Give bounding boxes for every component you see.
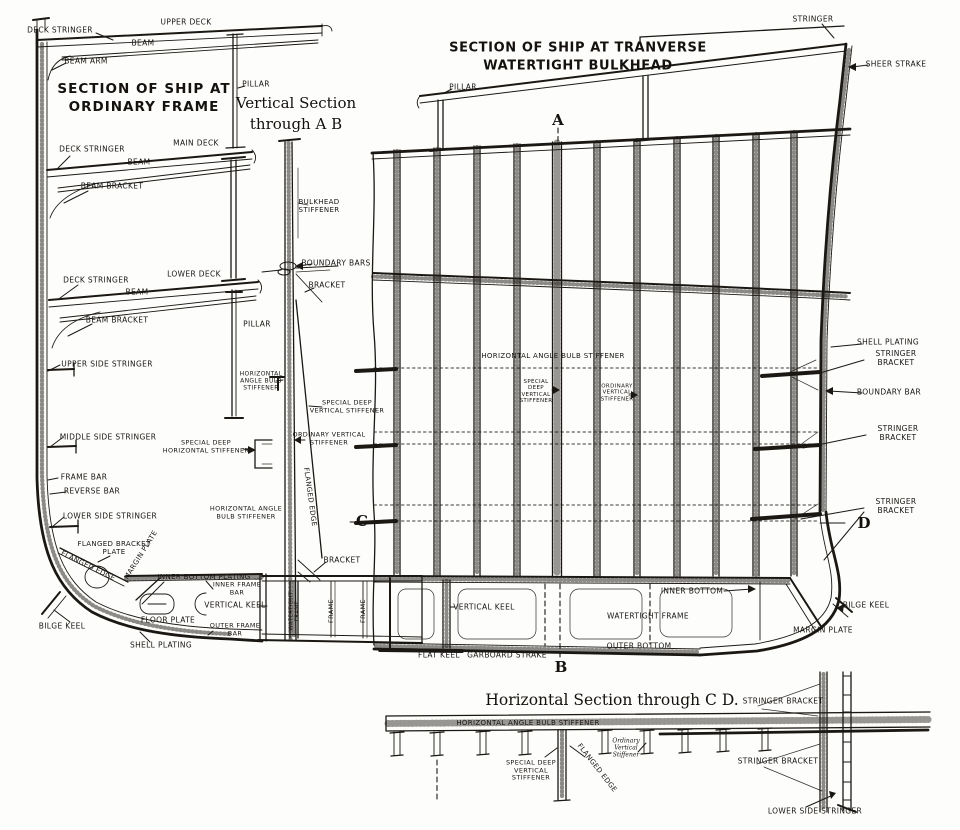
label-special-deep-horizontal-stiffener: SPECIAL DEEP HORIZONTAL STIFFENER — [163, 439, 250, 454]
label-beam-arm: BEAM ARM — [64, 58, 107, 67]
label-stringer-bracket-plan-bottom: STRINGER BRACKET — [738, 758, 819, 767]
label-sheer-strake: SHEER STRAKE — [866, 61, 927, 70]
marker-c: C — [356, 512, 368, 530]
ship-sections-plate: SECTION OF SHIP AT ORDINARY FRAME SECTIO… — [0, 0, 960, 830]
label-stringer-bracket-3: STRINGER BRACKET — [864, 498, 928, 516]
label-bilge-keel-right: BILGE KEEL — [843, 602, 890, 611]
leader-lines — [48, 24, 868, 807]
label-shell-plating-right: SHELL PLATING — [857, 339, 919, 348]
label-frame-1: FRAME — [328, 599, 336, 623]
label-stringer-bracket-2: STRINGER BRACKET — [867, 425, 929, 443]
marker-a: A — [552, 111, 564, 129]
label-shell-plating-left: SHELL PLATING — [130, 642, 192, 651]
label-horiz-angle-bulb-stiffener-lower: HORIZONTAL ANGLE BULB STIFFENER — [210, 505, 282, 520]
label-horiz-angle-bulb-stiffener-left: HORIZONTAL ANGLE BULB STIFFENER — [240, 370, 283, 391]
marker-b: B — [555, 658, 568, 676]
label-beam-upper: BEAM — [132, 40, 155, 49]
label-frame-2: FRAME — [360, 599, 368, 623]
horizontal-section-title: Horizontal Section through C D. — [485, 690, 738, 712]
label-middle-side-stringer: MIDDLE SIDE STRINGER — [60, 434, 157, 443]
label-special-deep-vertical-stiffener-mid: SPECIAL DEEP VERTICAL STIFFENER — [310, 399, 385, 414]
label-inner-frame-bar: INNER FRAME BAR — [213, 581, 261, 596]
label-boundary-bars: BOUNDARY BARS — [301, 260, 370, 269]
label-outer-frame-bar: OUTER FRAME BAR — [210, 622, 261, 637]
label-upper-deck: UPPER DECK — [160, 19, 211, 28]
label-inner-bottom-right: INNER BOTTOM — [661, 588, 723, 597]
label-frame-bar: FRAME BAR — [61, 474, 108, 483]
label-reverse-bar: REVERSE BAR — [64, 488, 120, 497]
label-beam-main: BEAM — [128, 159, 151, 168]
label-pillar-upper: PILLAR — [242, 81, 270, 90]
label-deck-stringer-top: DECK STRINGER — [27, 27, 93, 36]
label-vertical-keel-right: VERTICAL KEEL — [453, 604, 514, 613]
label-stringer-top: STRINGER — [793, 16, 834, 25]
label-floor-plate: FLOOR PLATE — [141, 617, 195, 626]
label-beam-lower: BEAM — [126, 289, 149, 298]
label-watertight-frame-mid: WATERTIGHT FRAME — [289, 592, 302, 631]
label-lower-side-stringer-plan: LOWER SIDE STRINGER — [768, 808, 862, 817]
label-beam-bracket-main: BEAM BRACKET — [81, 183, 144, 192]
label-stringer-bracket-plan-top: STRINGER BRACKET — [743, 698, 824, 707]
label-bracket-upper: BRACKET — [309, 282, 346, 291]
left-section-title: SECTION OF SHIP AT ORDINARY FRAME — [57, 80, 230, 116]
right-section-title: SECTION OF SHIP AT TRANVERSE WATERTIGHT … — [449, 39, 707, 74]
label-stringer-bracket-1: STRINGER BRACKET — [864, 350, 928, 368]
marker-d: D — [857, 514, 870, 532]
label-boundary-bar-right: BOUNDARY BAR — [857, 389, 921, 398]
label-special-deep-vertical-stiffener-plan: SPECIAL DEEP VERTICAL STIFFENER — [506, 760, 556, 783]
label-main-deck: MAIN DECK — [173, 140, 219, 149]
label-flat-keel: FLAT KEEL — [418, 652, 460, 661]
label-bulkhead-stiffener: BULKHEAD STIFFENER — [298, 198, 339, 215]
label-horiz-angle-bulb-stiffener-plan: HORIZONTAL ANGLE BULB STIFFENER — [456, 719, 599, 727]
label-upper-side-stringer: UPPER SIDE STRINGER — [61, 361, 153, 370]
label-ordinary-vertical-stiffener-mid: ORDINARY VERTICAL STIFFENER — [292, 431, 365, 446]
bulkhead-section-linework — [350, 26, 852, 658]
label-ordinary-vertical-stiffener-plan: Ordinary Vertical Stiffener — [612, 737, 639, 758]
label-horiz-angle-bulb-stiffener-bulkhead: HORIZONTAL ANGLE BULB STIFFENER — [481, 352, 624, 360]
label-deck-stringer-main: DECK STRINGER — [59, 146, 125, 155]
label-deck-stringer-lower: DECK STRINGER — [63, 277, 129, 286]
label-pillar-right: PILLAR — [449, 84, 477, 93]
label-bilge-keel-left: BILGE KEEL — [39, 623, 86, 632]
label-lower-deck: LOWER DECK — [167, 271, 221, 280]
label-lower-side-stringer: LOWER SIDE STRINGER — [63, 513, 157, 522]
label-pillar-lower: PILLAR — [243, 321, 271, 330]
label-vertical-keel-left: VERTICAL KEEL — [204, 602, 265, 611]
label-bracket-lower: BRACKET — [324, 557, 361, 566]
label-watertight-frame-right: WATERTIGHT FRAME — [607, 613, 689, 622]
label-beam-bracket-lower: BEAM BRACKET — [86, 317, 149, 326]
label-outer-bottom: OUTER BOTTOM — [607, 643, 672, 652]
vertical-section-title: Vertical Section through A B — [236, 93, 356, 135]
label-garboard-strake: GARBOARD STRAKE — [467, 652, 547, 661]
label-ordinary-vertical-stiffener-bulkhead: ORDINARY VERTICAL STIFFENER — [601, 383, 634, 402]
label-margin-plate-right: MARGIN PLATE — [793, 627, 853, 636]
label-special-deep-vertical-stiffener-bulkhead: SPECIAL DEEP VERTICAL STIFFENER — [520, 379, 553, 405]
